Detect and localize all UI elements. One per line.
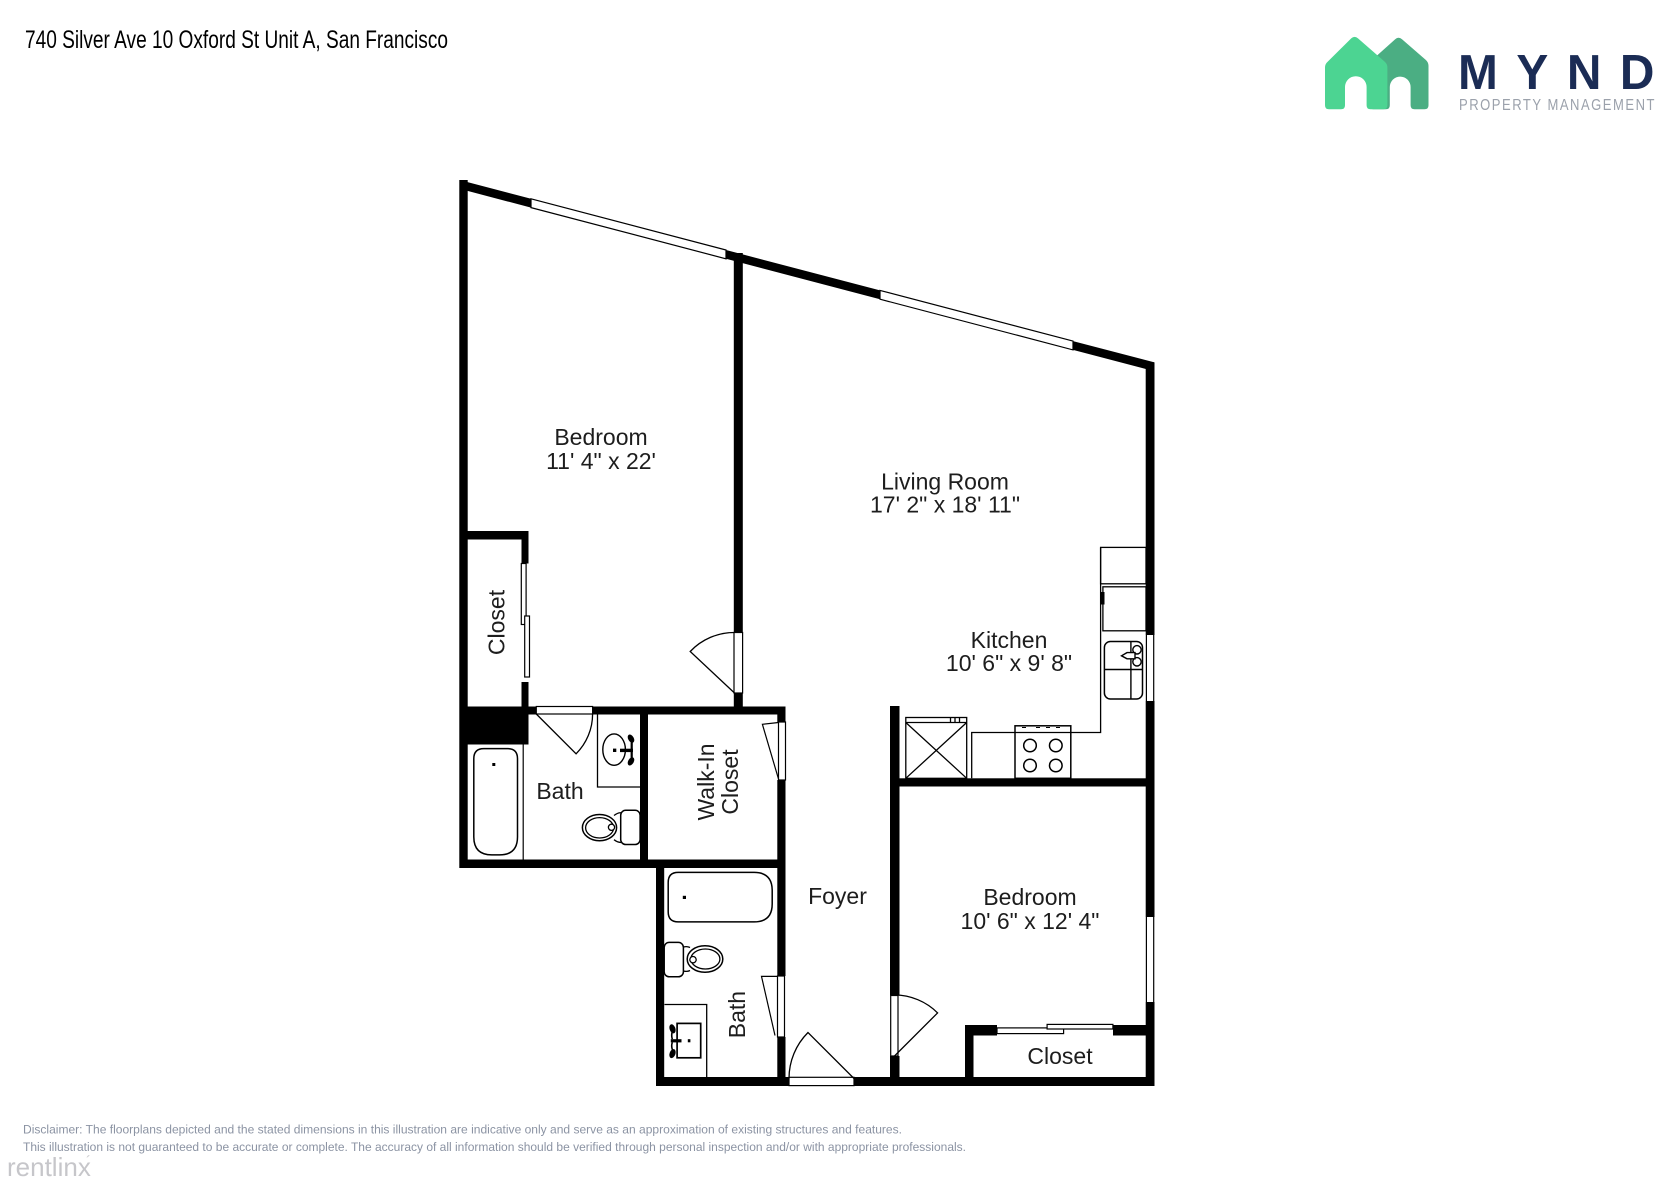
svg-text:´: ´ [86,1153,91,1170]
svg-text:Closet: Closet [1027,1043,1093,1069]
svg-text:Bedroom: Bedroom [554,424,647,450]
svg-text:Closet: Closet [717,749,743,815]
svg-text:MYND: MYND [1458,46,1673,100]
svg-text:Bedroom: Bedroom [983,884,1076,910]
svg-text:PROPERTY MANAGEMENT: PROPERTY MANAGEMENT [1459,97,1656,114]
svg-text:Bath: Bath [724,991,750,1038]
svg-text:10' 6" x 12' 4": 10' 6" x 12' 4" [961,908,1100,934]
svg-text:10' 6" x 9' 8": 10' 6" x 9' 8" [946,650,1072,676]
svg-text:rentlinx: rentlinx [7,1152,91,1182]
svg-text:Bath: Bath [536,778,583,804]
svg-text:17' 2" x 18' 11": 17' 2" x 18' 11" [870,492,1020,518]
svg-text:11' 4" x 22': 11' 4" x 22' [546,448,656,474]
svg-text:Walk-In: Walk-In [693,743,719,820]
svg-text:Disclaimer: The floorplans dep: Disclaimer: The floorplans depicted and … [23,1123,902,1137]
svg-text:Closet: Closet [484,589,510,655]
svg-text:Foyer: Foyer [808,883,867,909]
svg-text:This illustration is not guara: This illustration is not guaranteed to b… [23,1140,966,1154]
svg-text:740 Silver Ave 10 Oxford St Un: 740 Silver Ave 10 Oxford St Unit A, San … [25,26,448,54]
